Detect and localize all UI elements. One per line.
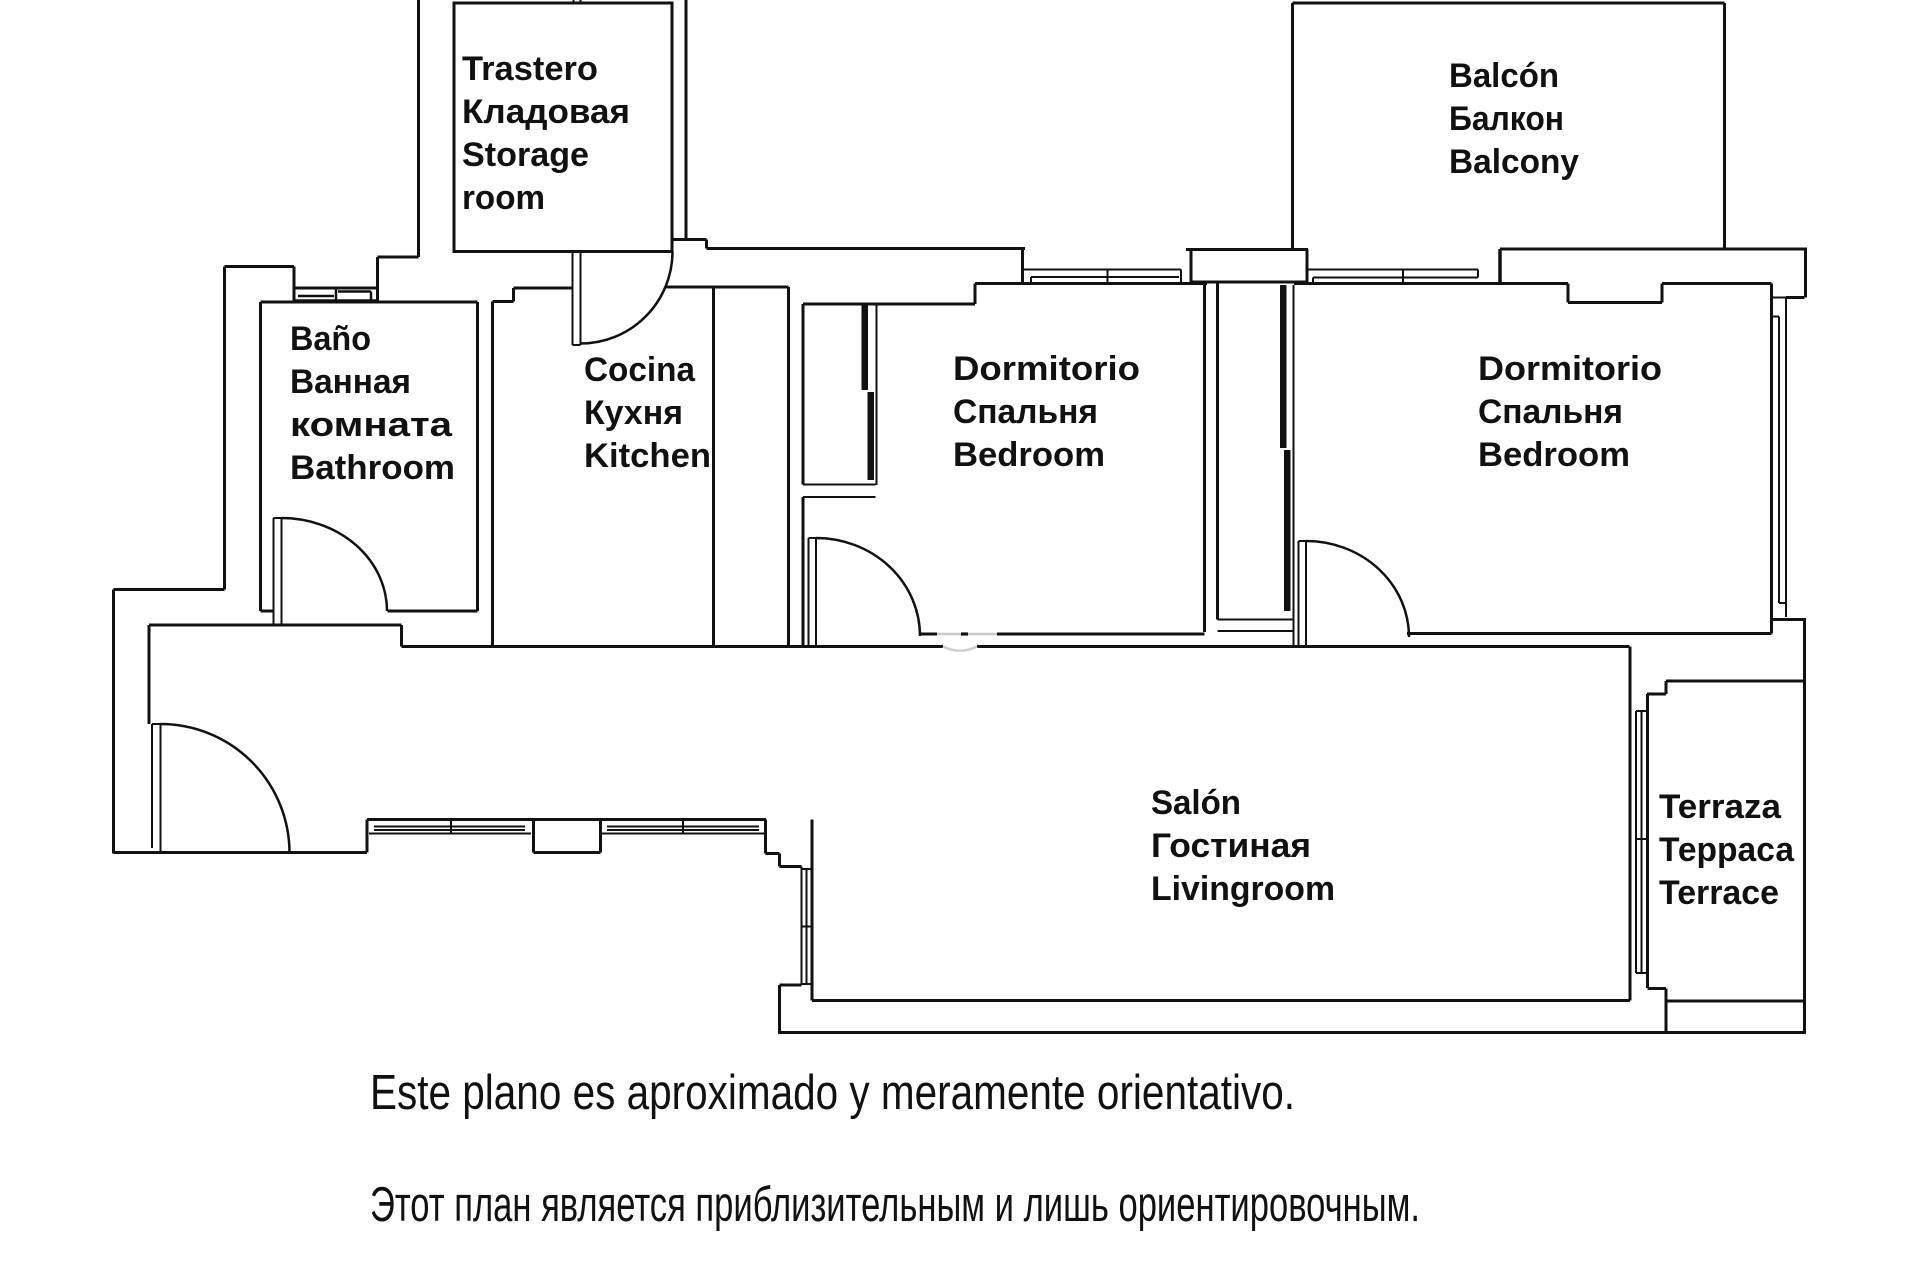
svg-text:Этот план является приблизител: Этот план является приблизительным и лиш… xyxy=(370,1178,1420,1232)
svg-text:Bathroom: Bathroom xyxy=(290,449,455,487)
svg-text:Bedroom: Bedroom xyxy=(953,436,1105,474)
svg-text:Livingroom: Livingroom xyxy=(1151,870,1335,908)
svg-text:Спальня: Спальня xyxy=(1478,393,1623,431)
svg-text:Salón: Salón xyxy=(1151,784,1241,822)
svg-text:Balcón: Balcón xyxy=(1449,57,1559,95)
svg-text:Baño: Baño xyxy=(290,320,371,358)
svg-text:Dormitorio: Dormitorio xyxy=(1478,350,1662,388)
svg-text:Terrace: Terrace xyxy=(1659,874,1779,912)
svg-text:Cocina: Cocina xyxy=(584,351,696,389)
svg-text:Ванная: Ванная xyxy=(290,363,411,401)
svg-text:Кухня: Кухня xyxy=(584,394,683,432)
svg-text:room: room xyxy=(462,179,545,217)
svg-text:Балкон: Балкон xyxy=(1449,100,1564,138)
svg-text:Este plano es aproximado y mer: Este plano es aproximado y meramente ori… xyxy=(370,1066,1295,1120)
svg-text:Terraza: Terraza xyxy=(1659,788,1782,826)
svg-text:Kitchen: Kitchen xyxy=(584,437,711,475)
svg-text:Balcony: Balcony xyxy=(1449,143,1579,181)
svg-text:комната: комната xyxy=(290,406,453,444)
svg-text:Терраса: Терраса xyxy=(1659,831,1795,869)
svg-text:Гостиная: Гостиная xyxy=(1151,827,1311,865)
svg-text:Спальня: Спальня xyxy=(953,393,1098,431)
svg-text:Dormitorio: Dormitorio xyxy=(953,350,1140,388)
svg-text:Bedroom: Bedroom xyxy=(1478,436,1630,474)
svg-text:Storage: Storage xyxy=(462,136,589,174)
svg-text:Кладовая: Кладовая xyxy=(462,93,630,131)
svg-text:Trastero: Trastero xyxy=(462,50,598,88)
